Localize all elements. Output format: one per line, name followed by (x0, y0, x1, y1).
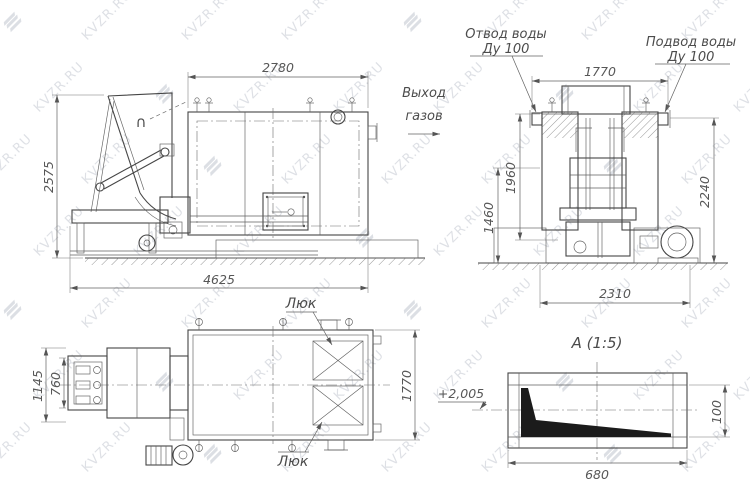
detail-title: А (1:5) (571, 334, 623, 352)
plan-view: Люк Люк (30, 296, 420, 470)
dim-feeder-outer: 1145 (30, 370, 45, 402)
water-jackets (542, 112, 658, 230)
dim-side-height-overall: 2240 (697, 176, 712, 208)
air-duct (170, 418, 184, 440)
hatch-box-top (313, 341, 363, 380)
side-dimensions: 1770 1960 1460 2240 2310 (481, 64, 719, 308)
label-hatch-top: Люк (285, 296, 317, 312)
hydraulic-cylinder (96, 144, 174, 191)
rear-stub (368, 123, 377, 142)
inspection-door (263, 193, 308, 230)
grate-mechanism (560, 118, 636, 258)
dim-front-height: 2575 (41, 161, 56, 193)
water-inlet-pipe (658, 110, 670, 128)
detail-a: А (1:5) +2,005 680 100 (438, 334, 730, 482)
hatch-box-bottom (313, 386, 363, 425)
label-gas-out-1: Выход (402, 86, 446, 101)
dim-side-width-bottom: 2310 (599, 286, 631, 301)
motor-icon (146, 446, 172, 465)
dim-feeder-inner: 760 (48, 372, 63, 396)
ground-hatch (85, 258, 425, 265)
dim-plan-width: 1770 (399, 370, 414, 402)
marker-leader (150, 102, 186, 119)
front-view: ∩ (41, 60, 425, 293)
label-gas-out-2: газов (405, 109, 442, 124)
dim-side-width-top: 1770 (584, 64, 616, 79)
dim-detail-width: 680 (585, 467, 609, 482)
dim-side-height-lower: 1460 (481, 202, 496, 234)
fuel-bed-profile (521, 388, 671, 437)
dim-side-height-body: 1960 (503, 162, 518, 194)
damper-wheel-icon (139, 235, 155, 251)
label-water-out-2: Ду 100 (482, 42, 530, 57)
valve-icons (193, 98, 356, 112)
fan-icon (640, 226, 698, 263)
blower-icon (173, 445, 193, 465)
dim-front-width: 2780 (262, 60, 294, 75)
hopper-marker: ∩ (136, 113, 147, 131)
hopper-top (562, 86, 630, 114)
fuel-hopper: ∩ (91, 93, 186, 226)
boiler-body (188, 98, 377, 238)
feeder-plan (68, 348, 193, 465)
dim-detail-height: 100 (709, 400, 724, 424)
label-water-in-1: Подвод воды (646, 35, 736, 50)
side-view: Выход газов Отвод воды Ду 100 Подвод вод… (402, 27, 736, 308)
water-outlet-pipe (530, 110, 542, 128)
technical-drawing: ∩ (0, 0, 750, 500)
dim-front-length: 4625 (203, 272, 235, 287)
label-hatch-bottom: Люк (277, 454, 309, 470)
valve-icons (548, 98, 650, 112)
drawing-sheet: KVZR.RUKVZR.RUKVZR.RUKVZR.RUKVZR.RUKVZR.… (0, 0, 750, 500)
label-water-out-1: Отвод воды (465, 27, 546, 42)
label-elevation: +2,005 (438, 386, 484, 401)
label-water-in-2: Ду 100 (667, 50, 715, 65)
